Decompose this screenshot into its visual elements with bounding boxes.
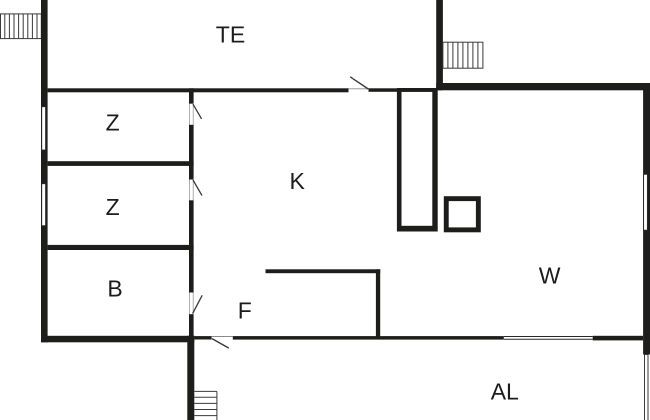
svg-text:B: B	[107, 276, 122, 302]
svg-text:AL: AL	[491, 379, 519, 405]
svg-text:Z: Z	[106, 110, 120, 136]
svg-text:K: K	[290, 168, 306, 194]
svg-text:W: W	[539, 262, 561, 288]
svg-text:Z: Z	[106, 194, 120, 220]
svg-text:F: F	[238, 297, 252, 323]
svg-text:TE: TE	[216, 22, 245, 48]
